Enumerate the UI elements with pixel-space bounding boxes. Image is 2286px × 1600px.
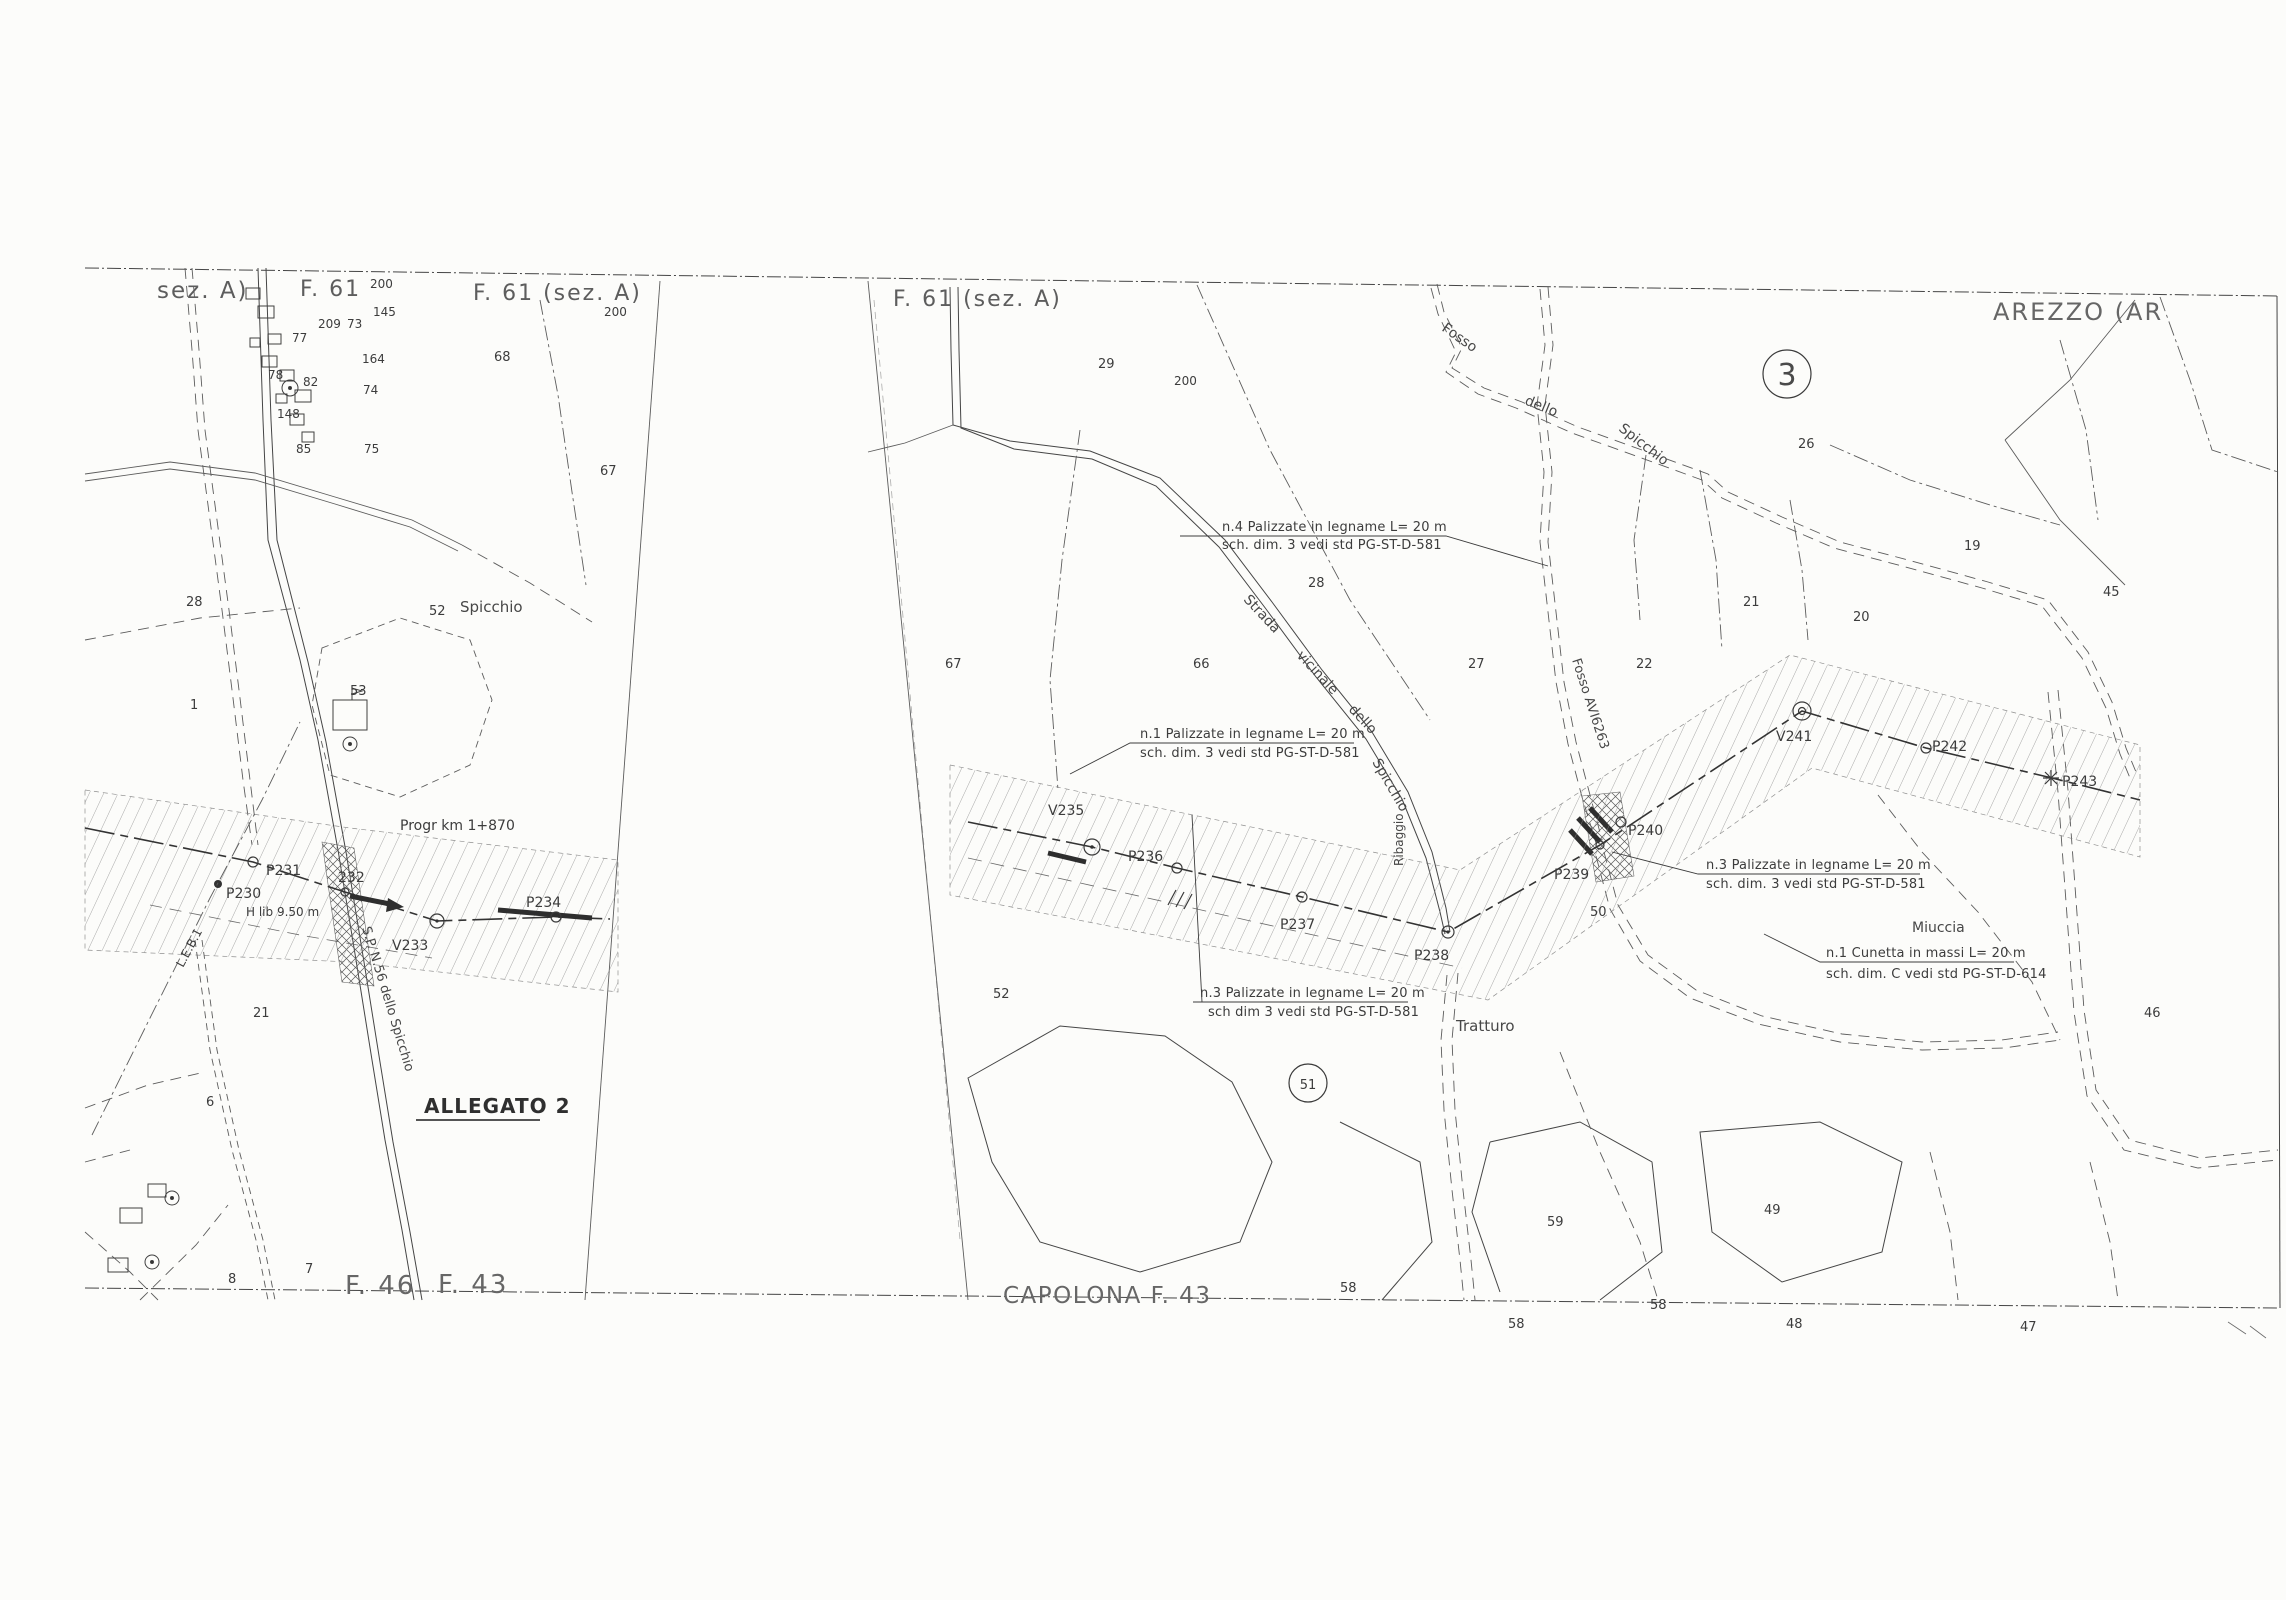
parcel-number: 26 (1798, 437, 1815, 452)
annotation-n1-palizzate: n.1 Palizzate in legname L= 20 m sch. di… (1140, 727, 1365, 761)
parcel-number: 209 (318, 317, 341, 331)
point-label-P230: P230 (226, 886, 261, 902)
parcel-number: 50 (1590, 905, 1607, 920)
annotation-line1: n.4 Palizzate in legname L= 20 m (1222, 520, 1447, 535)
parcel-number: 58 (1650, 1298, 1667, 1313)
sheet-title-f61-center: F. 61 (sez. A) (893, 287, 1062, 312)
parcel-number: 82 (303, 375, 318, 389)
buildings-left (108, 288, 367, 1272)
parcel-number: 73 (347, 317, 362, 331)
parcel-number: 75 (364, 442, 379, 456)
left-sheet-linework (85, 300, 953, 1300)
parcel-number: 66 (1193, 657, 1210, 672)
toponym-spicchio-road: Spicchio (1369, 756, 1412, 815)
parcel-number: 148 (277, 407, 300, 421)
survey-point-marker-P243-star (2043, 770, 2059, 786)
point-label-V235: V235 (1048, 803, 1084, 819)
parcel-number-circled: 51 (1300, 1078, 1317, 1093)
point-label-P234: P234 (526, 895, 561, 911)
parcel-number: 68 (494, 350, 511, 365)
toponym-strada: Strada (1240, 592, 1283, 637)
parcel-number: 46 (2144, 1006, 2161, 1021)
parcel-number: 20 (1853, 610, 1870, 625)
parcel-number: 200 (370, 277, 393, 291)
annotation-n1-cunetta: n.1 Cunetta in massi L= 20 m sch. dim. C… (1826, 946, 2047, 982)
annotation-line2: sch. dim. 3 vedi std PG-ST-D-581 (1222, 538, 1442, 553)
survey-point-marker-P230 (214, 880, 222, 888)
parcel-number: 58 (1340, 1281, 1357, 1296)
parcel-number: 164 (362, 352, 385, 366)
parcel-number: 8 (228, 1272, 236, 1287)
point-label-P243: P243 (2062, 774, 2097, 790)
parcel-number: 78 (268, 368, 283, 382)
parcel-number: 58 (1508, 1317, 1525, 1332)
annotation-n4-palizzate: n.4 Palizzate in legname L= 20 m sch. di… (1222, 520, 1447, 553)
parcel-number: 6 (206, 1095, 214, 1110)
building-53 (333, 700, 367, 730)
annotation-line1: n.3 Palizzate in legname L= 20 m (1200, 986, 1425, 1001)
parcel-number: 77 (292, 331, 307, 345)
scanned-map-page: sez. A) F. 61 F. 61 (sez. A) F. 61 (sez.… (0, 0, 2286, 1600)
toponym-spicchio: Spicchio (460, 598, 523, 616)
parcel-number: 47 (2020, 1320, 2037, 1335)
toponym-ribaggio: Ribaggio (1392, 813, 1406, 866)
progressive-km-label: Progr km 1+870 (400, 818, 515, 834)
center-sheet (868, 281, 2278, 1300)
marker-dot (435, 919, 438, 922)
parcel-number: 74 (363, 383, 378, 397)
sheet-title-f46: F. 46 (345, 1271, 415, 1301)
sheet-title-f61-mid: F. 61 (sez. A) (473, 281, 642, 306)
toponym-miuccia: Miuccia (1912, 920, 1965, 936)
parcel-number: 200 (604, 305, 627, 319)
parcel-number: 29 (1098, 357, 1115, 372)
parcel-number: 28 (1308, 576, 1325, 591)
annotation-line1: n.1 Palizzate in legname L= 20 m (1140, 727, 1365, 742)
annotation-line2: sch. dim. 3 vedi std PG-ST-D-581 (1706, 877, 1926, 892)
point-label-P238: P238 (1414, 948, 1449, 964)
parcel-number: 53 (350, 684, 367, 699)
parcel-number: 21 (1743, 595, 1760, 610)
point-label-P240: P240 (1628, 823, 1663, 839)
point-label-P239: P239 (1554, 867, 1589, 883)
parcel-number: 28 (186, 595, 203, 610)
annotation-line1: n.3 Palizzate in legname L= 20 m (1706, 858, 1931, 873)
annotation-line2: sch. dim. C vedi std PG-ST-D-614 (1826, 967, 2047, 982)
annotation-n3-palizzate-bottom: n.3 Palizzate in legname L= 20 m sch dim… (1200, 986, 1425, 1020)
annotation-line2: sch dim 3 vedi std PG-ST-D-581 (1208, 1005, 1419, 1020)
sheet-title-capolona: CAPOLONA F. 43 (1003, 1283, 1212, 1309)
parcel-number: 1 (190, 698, 198, 713)
provincial-road (258, 268, 422, 1300)
parcel-numbers: 200 145 209 73 77 164 78 82 74 148 85 75… (186, 277, 2161, 1335)
clearance-label: H lib 9.50 m (246, 905, 319, 919)
parcel-number: 59 (1547, 1215, 1564, 1230)
left-sheet (85, 268, 953, 1300)
parcel-number: 49 (1764, 1203, 1781, 1218)
toponym-dello: dello (1523, 393, 1560, 421)
parcel-number: 27 (1468, 657, 1485, 672)
annotation-line1: n.1 Cunetta in massi L= 20 m (1826, 946, 2026, 961)
toponym-fosso: Fosso (1439, 320, 1480, 356)
parcel-number: 19 (1964, 539, 1981, 554)
toponym-tratturo: Tratturo (1455, 1017, 1515, 1035)
parcel-number: 52 (993, 987, 1010, 1002)
stream-lines (185, 268, 258, 845)
corner-tick-marks (2228, 1322, 2266, 1338)
sheet-cut-edge-left (585, 281, 660, 1300)
annotation-line2: sch. dim. 3 vedi std PG-ST-D-581 (1140, 746, 1360, 761)
parcel-number: 67 (600, 464, 617, 479)
parcel-number: 200 (1174, 374, 1197, 388)
labels: sez. A) F. 61 F. 61 (sez. A) F. 61 (sez.… (157, 277, 2163, 1335)
parcel-number: 85 (296, 442, 311, 456)
point-label-V241: V241 (1776, 729, 1812, 745)
map-canvas: sez. A) F. 61 F. 61 (sez. A) F. 61 (sez.… (0, 0, 2286, 1600)
point-label-P242: P242 (1932, 739, 1967, 755)
point-label-V233: V233 (392, 938, 428, 954)
parcel-number: 48 (1786, 1317, 1803, 1332)
annotation-n3-palizzate-right: n.3 Palizzate in legname L= 20 m sch. di… (1706, 858, 1931, 892)
parcel-number: 145 (373, 305, 396, 319)
toponym-spicchio-stream: Spicchio (1616, 421, 1672, 470)
work-corridor-left (85, 790, 618, 992)
toponym-vicinale: vicinale (1293, 648, 1341, 698)
parcel-number: 67 (945, 657, 962, 672)
sheet-title-arezzo: AREZZO (AR (1993, 298, 2163, 326)
parcel-number: 45 (2103, 585, 2120, 600)
sheet-title-f61-left: F. 61 (300, 277, 361, 302)
point-label-P231: P231 (266, 863, 301, 879)
sheet-title-f43: F. 43 (438, 1270, 508, 1300)
point-label-232: 232 (338, 870, 365, 886)
point-label-P237: P237 (1280, 917, 1315, 933)
parcel-number: 21 (253, 1006, 270, 1021)
attachment-label: ALLEGATO 2 (424, 1094, 571, 1118)
sheet-index-number: 3 (1777, 358, 1796, 393)
point-label-P236: P236 (1128, 849, 1163, 865)
parcel-number: 52 (429, 604, 446, 619)
sheet-title-sez-a: sez. A) (157, 278, 249, 304)
parcel-number: 22 (1636, 657, 1653, 672)
parcel-number: 7 (305, 1262, 313, 1277)
